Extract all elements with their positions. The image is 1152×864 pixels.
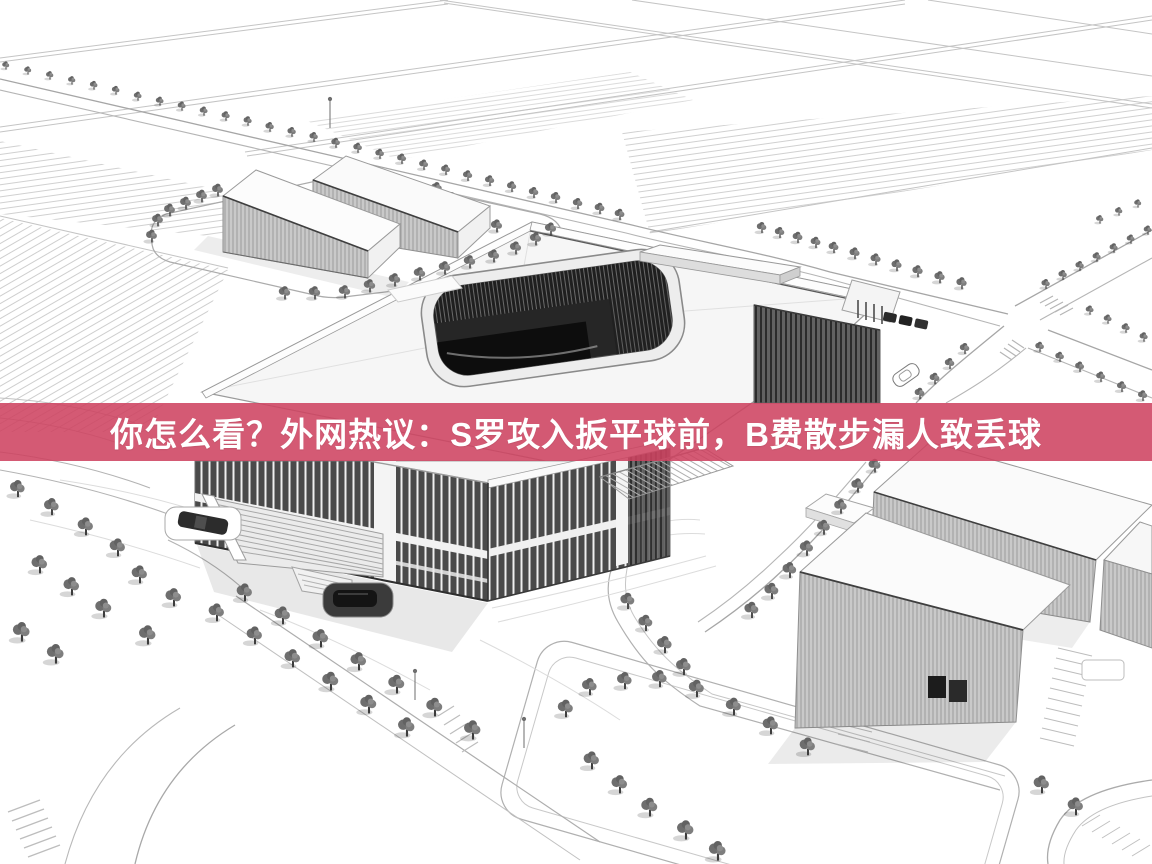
headline-text: 你怎么看？外网热议：S罗攻入扳平球前，B费散步漏人致丢球 [110,408,1042,456]
headline-banner: 你怎么看？外网热议：S罗攻入扳平球前，B费散步漏人致丢球 [0,403,1152,461]
sunken-entry [323,583,393,617]
scene: 你怎么看？外网热议：S罗攻入扳平球前，B费散步漏人致丢球 [0,0,1152,864]
parking-pad [165,507,241,540]
